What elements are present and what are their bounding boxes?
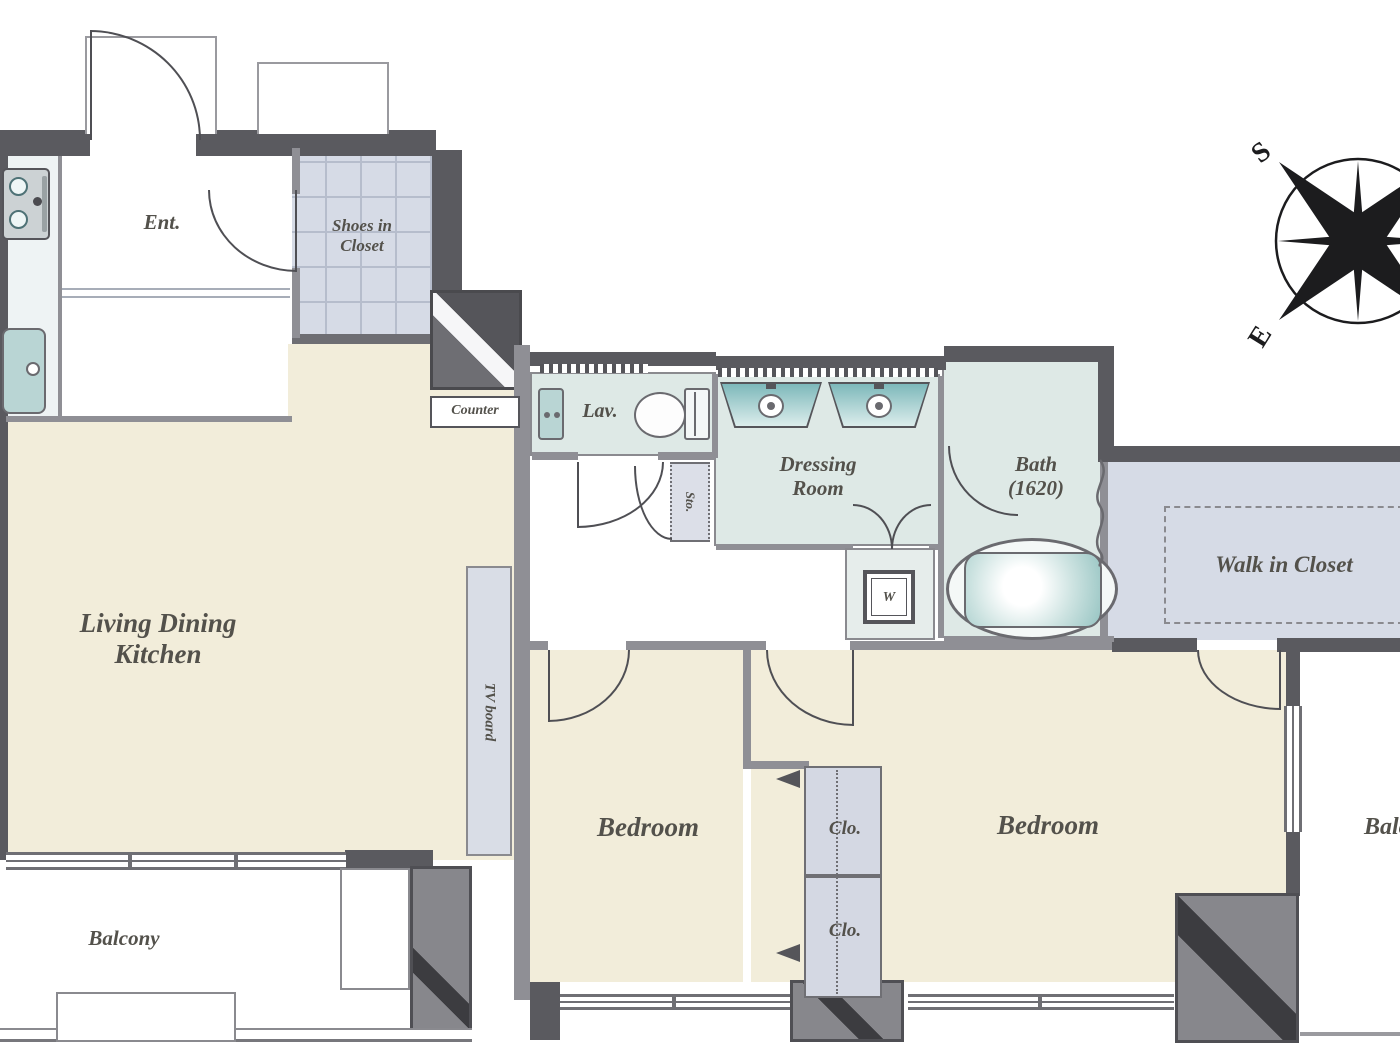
closet-block [806, 768, 880, 996]
label-line: Bath [1008, 452, 1064, 476]
kitchen-sink-drain [26, 362, 40, 376]
pillar-hatch [413, 929, 469, 1039]
pillar-hatch [1178, 896, 1296, 1040]
wall-between-bedrooms [743, 649, 751, 765]
entrance-step-line-2 [62, 296, 290, 298]
wall-hall-bedrooms-3 [850, 641, 1112, 650]
label-bath: Bath (1620) [1008, 452, 1064, 500]
wall-closet-connector [743, 761, 809, 769]
wall-lav-dressing [712, 374, 718, 458]
vanity-sink-right [828, 382, 930, 428]
balcony-planter [56, 992, 236, 1042]
window-sash-tick [672, 997, 676, 1007]
toilet-tank [684, 388, 710, 440]
wall-wic-bottom-left [1112, 638, 1197, 652]
balcony-right-rail [1300, 1032, 1400, 1036]
label-closet-lower: Clo. [829, 920, 861, 942]
wall-dressing-bath [938, 376, 944, 638]
closet-divider [806, 874, 880, 878]
wall-bath-step [1098, 346, 1114, 460]
window-sash-tick [234, 855, 238, 867]
compass-east-label: E [1242, 320, 1278, 352]
closet-arrow-top [776, 770, 800, 788]
wall-bedroom-right-upper [1286, 652, 1300, 708]
label-line: (1620) [1008, 476, 1064, 500]
wall-lav-bottom-right [658, 452, 716, 460]
label-lavatory: Lav. [582, 400, 617, 423]
stove-burner [9, 210, 28, 229]
label-storage: Sto. [682, 492, 698, 513]
wall-bedroom-right-lower [1286, 830, 1300, 896]
hand-basin [538, 388, 564, 440]
wall-lav-bottom-left [532, 452, 578, 460]
balcony-storage-box [340, 868, 410, 990]
wall-wic-bottom-right [1277, 638, 1400, 652]
window-bedroom-right-balcony [1284, 706, 1302, 832]
exterior-alcove-right [257, 62, 389, 134]
label-line: Room [779, 476, 856, 500]
stove-grill [42, 176, 47, 232]
label-balcony-main: Balcony [88, 926, 159, 950]
toilet-tank-line [694, 392, 696, 436]
window-bedroom-left-bottom [560, 994, 790, 1010]
basin-faucet [554, 412, 560, 418]
window-ldk-balcony [6, 852, 346, 870]
wall-dressing-bottom-left [716, 544, 853, 550]
vent-band-lavatory [540, 364, 648, 373]
wall-ent-shoes-upper [292, 148, 300, 194]
window-sash-tick [1038, 997, 1042, 1007]
label-line: Living Dining [80, 608, 237, 639]
window-sash-tick [128, 855, 132, 867]
bathtub-inner [964, 552, 1102, 628]
pillar-bottom-right [1175, 893, 1299, 1043]
wall-hall-bedrooms-1 [530, 641, 548, 650]
label-closet-upper: Clo. [829, 818, 861, 840]
entrance-step-line-1 [62, 288, 290, 290]
label-bedroom-left: Bedroom [597, 812, 699, 843]
vanity-sink-drain [767, 402, 775, 410]
wall-wic-top [1098, 446, 1400, 462]
label-line: Kitchen [80, 639, 237, 670]
label-line: Closet [332, 236, 392, 256]
label-shoes-closet: Shoes in Closet [332, 216, 392, 255]
wall-ldk-hall-divider [514, 345, 530, 1000]
wall-shoes-bottom [292, 334, 432, 344]
closet-arrow-bottom [776, 944, 800, 962]
wall-ent-shoes-lower [292, 268, 300, 338]
vanity-faucet [766, 382, 776, 389]
pillar-top-center [430, 290, 522, 390]
toilet-bowl [634, 392, 686, 438]
label-entrance: Ent. [144, 210, 181, 234]
kitchen-sink [2, 328, 46, 414]
vanity-sink-drain [875, 402, 883, 410]
label-balcony-right: Balcony [1364, 814, 1400, 842]
wall-ent-ldk [6, 416, 292, 422]
wall-shoes-right [432, 150, 462, 300]
door-arc-storage [634, 466, 672, 540]
label-counter: Counter [451, 403, 498, 419]
vanity-faucet [874, 382, 884, 389]
label-walk-in-closet: Walk in Closet [1215, 552, 1353, 578]
bath-folding-door [1086, 458, 1116, 568]
stove-burner [9, 177, 28, 196]
label-line: Dressing [779, 452, 856, 476]
wall-kitchen-ent [58, 156, 62, 418]
label-dressing-room: Dressing Room [779, 452, 856, 500]
floor-plan: Ent. Shoes in Closet Counter Living Dini… [0, 0, 1400, 1050]
closet-door-track [836, 770, 840, 994]
wall-top-left [0, 130, 90, 156]
wall-above-bath [944, 346, 1114, 362]
label-ldk: Living Dining Kitchen [80, 608, 237, 670]
basin-drain [544, 412, 550, 418]
vanity-sink-left [720, 382, 822, 428]
label-tv-board: TV board [481, 683, 498, 741]
compass-south-label: S [1245, 135, 1276, 169]
stove-knob [33, 197, 42, 206]
vent-band-dressing [718, 368, 938, 377]
label-bedroom-right: Bedroom [997, 810, 1099, 841]
wall-bedroom-left-corner [530, 982, 560, 1040]
compass-rose: S E [1240, 118, 1400, 368]
label-washer: W [883, 590, 895, 606]
pillar-balcony-right [410, 866, 472, 1042]
label-line: Shoes in [332, 216, 392, 236]
stove [2, 168, 50, 240]
window-bedroom-right-bottom [908, 994, 1174, 1010]
